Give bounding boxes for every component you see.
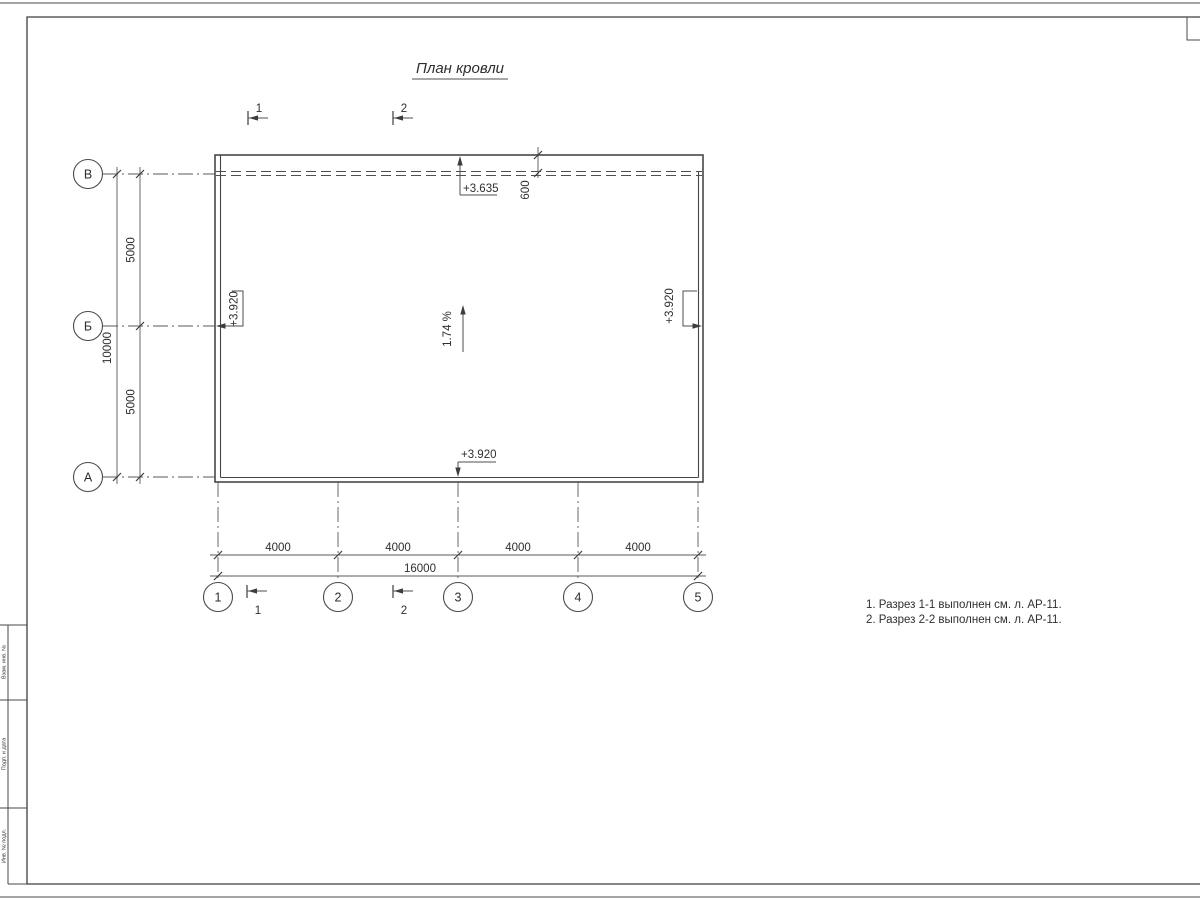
elevation-right-value: +3.920 [664, 288, 676, 324]
section-2-bottom-label: 2 [401, 605, 407, 617]
stamp-label-2: Подп. и дата [2, 737, 8, 770]
grid-axes [103, 174, 698, 583]
page-title: План кровли [416, 60, 505, 77]
elevation-top-arrow [457, 156, 462, 166]
dim-5000-2: 5000 [126, 389, 138, 415]
roof-plan-drawing: Взам. инв. № Подп. и дата Инв. № подл. П… [0, 0, 1200, 900]
elevation-left-value: +3.920 [229, 291, 241, 327]
dim-10000: 10000 [102, 332, 114, 364]
drawing-sheet: Взам. инв. № Подп. и дата Инв. № подл. П… [0, 0, 1200, 900]
roof-outline [215, 155, 703, 482]
roof-edge [215, 155, 703, 482]
elevation-right-arrow [693, 323, 703, 328]
dim-4000-4: 4000 [625, 542, 651, 554]
grid-bubble-row-v-label: В [84, 168, 92, 182]
section-mark-1-top: 1 [248, 103, 268, 125]
grid-bubble-col-1-label: 1 [215, 591, 222, 605]
note-1: 1. Разрез 1-1 выполнен см. л. АР-11. [866, 599, 1062, 611]
dim-16000: 16000 [404, 563, 436, 575]
dim-4000-1: 4000 [265, 542, 291, 554]
section-mark-1-bottom: 1 [247, 585, 267, 617]
slope-arrow-head [460, 305, 465, 315]
grid-bubble-row-a-label: А [84, 471, 93, 485]
grid-bubble-row-b-label: Б [84, 320, 92, 334]
note-2: 2. Разрез 2-2 выполнен см. л. АР-11. [866, 614, 1062, 626]
section-mark-2-bottom: 2 [393, 585, 413, 617]
section-1-top-arrow [249, 115, 258, 120]
grid-bubble-col-3-label: 3 [455, 591, 462, 605]
section-2-top-arrow [394, 115, 403, 120]
drawing-frame [27, 17, 1200, 884]
dim-5000-1: 5000 [126, 237, 138, 263]
section-2-top-label: 2 [401, 103, 407, 115]
left-dimensions: 5000 5000 10000 [102, 167, 144, 484]
section-1-bottom-arrow [248, 588, 257, 593]
notes-block: 1. Разрез 1-1 выполнен см. л. АР-11. 2. … [866, 599, 1062, 626]
elevation-bottom: +3.920 [455, 449, 496, 477]
section-1-top-label: 1 [256, 103, 262, 115]
grid-bubble-col-4-label: 4 [575, 591, 582, 605]
elevation-top-value: +3.635 [463, 183, 499, 195]
grid-bubbles-columns: 1 2 3 4 5 [204, 583, 713, 612]
elevation-bottom-arrow [455, 468, 460, 478]
dim-4000-3: 4000 [505, 542, 531, 554]
stamp-label-1: Взам. инв. № [2, 645, 8, 679]
grid-bubble-col-2-label: 2 [335, 591, 342, 605]
section-2-bottom-arrow [394, 588, 403, 593]
elevation-right-leader [683, 291, 698, 326]
wall-lines [221, 155, 699, 478]
slope-annotation: 1.74 % [442, 305, 466, 352]
elevation-right: +3.920 [664, 288, 702, 328]
frame-corner-box [1187, 17, 1200, 40]
grid-bubbles-rows: В Б А [74, 160, 103, 492]
title-block: План кровли [412, 60, 508, 79]
section-1-bottom-label: 1 [255, 605, 261, 617]
elevation-bottom-value: +3.920 [461, 449, 497, 461]
stamp-label-3: Инв. № подл. [2, 828, 8, 863]
dim-4000-2: 4000 [385, 542, 411, 554]
section-mark-2-top: 2 [393, 103, 413, 125]
dim-600: 600 [520, 180, 532, 199]
grid-bubble-col-5-label: 5 [695, 591, 702, 605]
sheet-border: Взам. инв. № Подп. и дата Инв. № подл. [0, 3, 1200, 897]
slope-value: 1.74 % [442, 311, 454, 347]
